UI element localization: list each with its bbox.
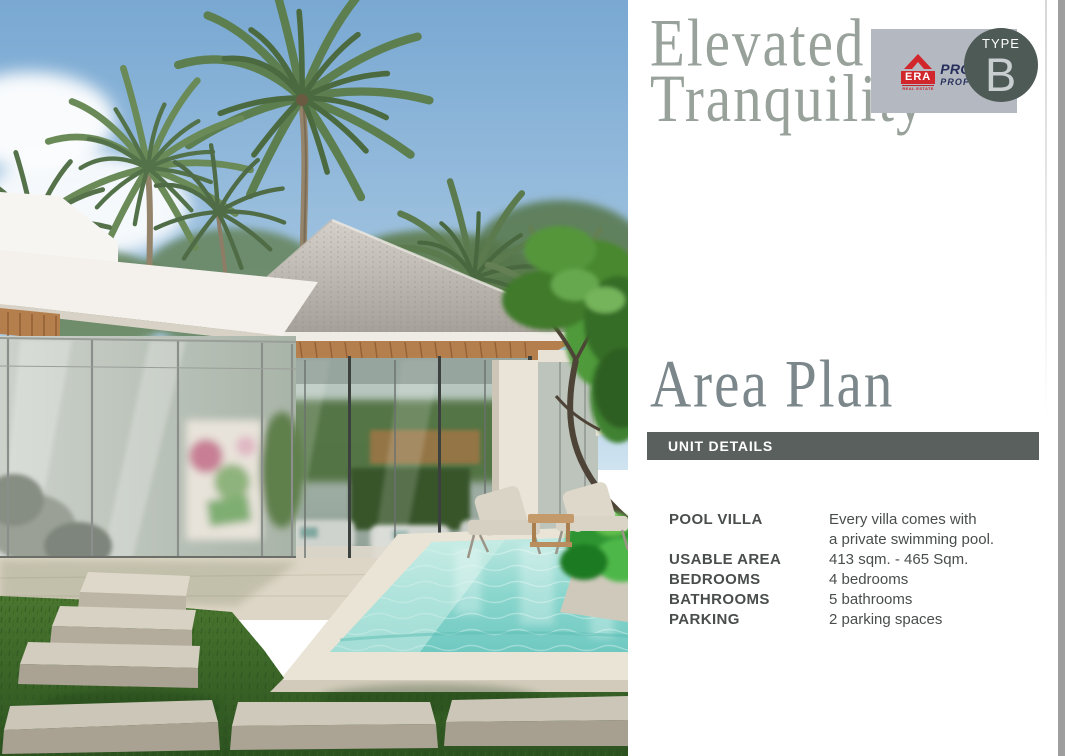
- detail-label: BEDROOMS: [669, 570, 829, 590]
- unit-details-table: POOL VILLA Every villa comes with a priv…: [669, 510, 1049, 630]
- window-scrollbar[interactable]: [1058, 0, 1065, 756]
- detail-label: BATHROOMS: [669, 590, 829, 610]
- detail-row: BEDROOMS 4 bedrooms: [669, 570, 1049, 590]
- era-wordmark: ERA: [901, 71, 935, 84]
- detail-label: POOL VILLA: [669, 510, 829, 550]
- detail-label: PARKING: [669, 610, 829, 630]
- detail-value: 4 bedrooms: [829, 570, 1049, 590]
- detail-row: POOL VILLA Every villa comes with a priv…: [669, 510, 1049, 550]
- glass-pavilion: [0, 250, 318, 570]
- era-tagline: REAL ESTATE: [902, 85, 934, 91]
- detail-row: BATHROOMS 5 bathrooms: [669, 590, 1049, 610]
- detail-value: 413 sqm. - 465 Sqm.: [829, 550, 1049, 570]
- section-heading: Area Plan: [650, 356, 894, 415]
- unit-details-title: UNIT DETAILS: [647, 432, 1039, 460]
- detail-label: USABLE AREA: [669, 550, 829, 570]
- detail-row: PARKING 2 parking spaces: [669, 610, 1049, 630]
- era-logo: ERA REAL ESTATE: [901, 51, 935, 91]
- detail-value: 2 parking spaces: [829, 610, 1049, 630]
- brochure-page: Elevated Tranquility ERA REAL ESTATE PRO…: [0, 0, 1065, 756]
- type-badge: TYPE B: [964, 28, 1038, 102]
- villa-photo-illustration: [0, 0, 628, 756]
- era-house-icon: [903, 51, 933, 70]
- page-edge-shadow: [1045, 0, 1047, 420]
- info-panel: Elevated Tranquility ERA REAL ESTATE PRO…: [628, 0, 1058, 756]
- type-badge-value: B: [964, 47, 1038, 102]
- detail-row: USABLE AREA 413 sqm. - 465 Sqm.: [669, 550, 1049, 570]
- detail-value: Every villa comes with a private swimmin…: [829, 510, 1049, 550]
- detail-value: 5 bathrooms: [829, 590, 1049, 610]
- stepping-stones: [2, 696, 628, 754]
- unit-details-bar: UNIT DETAILS: [647, 432, 1039, 460]
- villa-photo: [0, 0, 628, 756]
